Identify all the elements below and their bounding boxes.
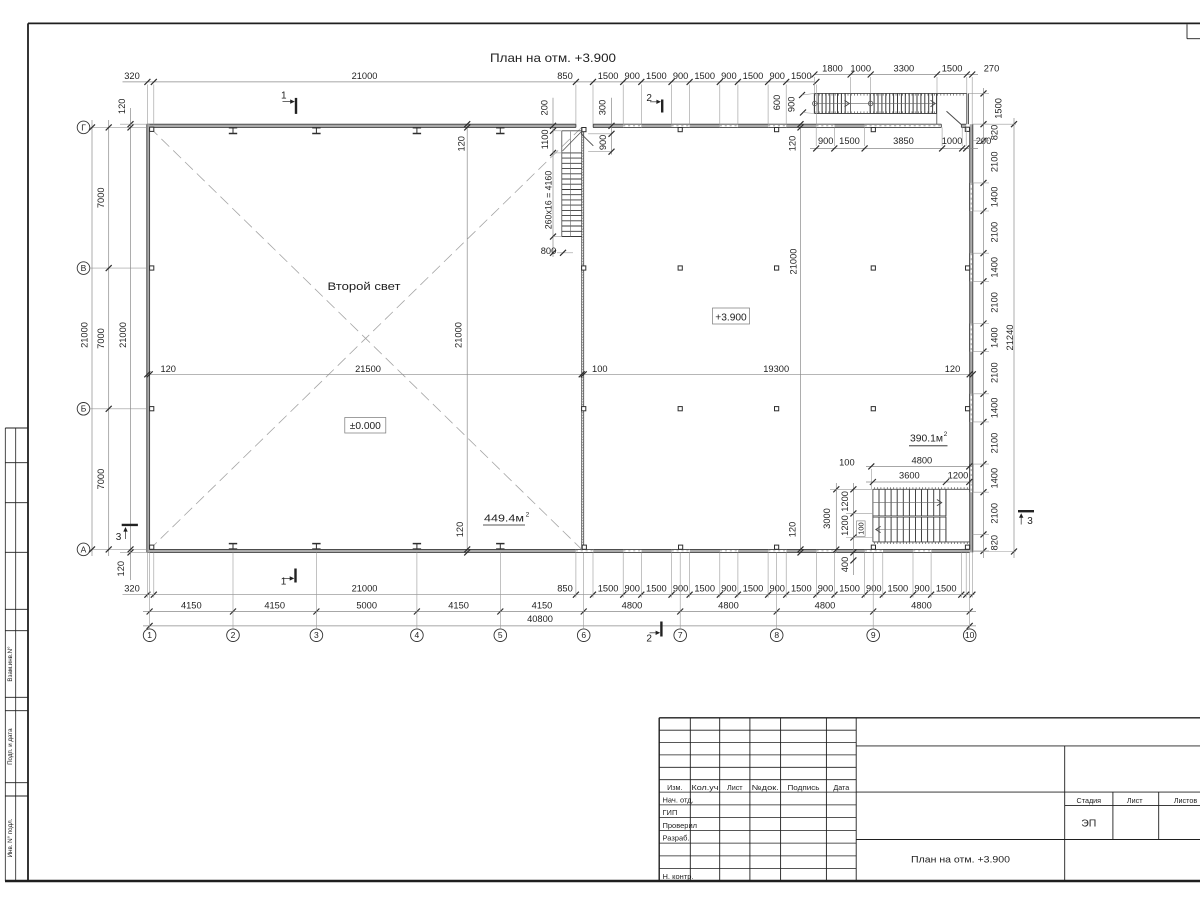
svg-text:7000: 7000 [96,469,106,490]
svg-text:900: 900 [818,136,834,146]
svg-text:2100: 2100 [989,433,999,454]
svg-text:1200: 1200 [840,515,850,536]
svg-text:900: 900 [787,97,797,113]
svg-text:3600: 3600 [899,471,920,481]
svg-text:100: 100 [839,457,855,467]
svg-text:40800: 40800 [527,614,553,624]
svg-text:1500: 1500 [791,71,812,81]
svg-text:7: 7 [678,630,683,640]
svg-text:2100: 2100 [989,292,999,313]
svg-text:1400: 1400 [989,187,999,208]
svg-text:Г: Г [81,122,86,132]
svg-text:А: А [81,544,87,554]
svg-text:1200: 1200 [840,491,850,512]
svg-text:Изм.: Изм. [667,783,682,792]
svg-text:5: 5 [498,630,503,640]
svg-text:850: 850 [557,71,573,81]
svg-text:Лист: Лист [1127,796,1143,805]
svg-text:Лист: Лист [727,783,743,792]
svg-text:820: 820 [990,125,1000,141]
svg-text:1200: 1200 [948,471,969,481]
svg-text:900: 900 [673,584,689,594]
svg-text:Н. контр.: Н. контр. [663,872,694,881]
svg-text:1500: 1500 [743,584,764,594]
svg-text:3: 3 [314,630,319,640]
svg-text:План на отм. +3.900: План на отм. +3.900 [490,51,616,65]
svg-text:8: 8 [774,630,779,640]
svg-text:3000: 3000 [822,508,832,529]
svg-text:100: 100 [856,522,865,534]
svg-text:Второй свет: Второй свет [328,281,401,293]
svg-text:1500: 1500 [598,71,619,81]
svg-text:Листов: Листов [1174,796,1198,805]
svg-text:120: 120 [116,561,126,577]
svg-text:1500: 1500 [791,584,812,594]
svg-text:1000: 1000 [850,64,871,74]
svg-text:1400: 1400 [989,257,999,278]
svg-text:260x16 = 4160: 260x16 = 4160 [544,171,554,230]
svg-text:№док.: №док. [752,783,779,792]
svg-text:ЭП: ЭП [1081,818,1096,830]
svg-text:Стадия: Стадия [1077,796,1102,805]
svg-text:900: 900 [818,584,834,594]
svg-text:120: 120 [787,136,797,152]
svg-text:Подп. и дата: Подп. и дата [7,728,14,765]
svg-text:21500: 21500 [355,364,381,374]
svg-text:900: 900 [598,135,608,151]
svg-text:+3.900: +3.900 [715,313,747,324]
svg-text:Б: Б [81,404,87,414]
svg-text:300: 300 [598,100,608,116]
svg-text:10: 10 [965,630,975,640]
svg-text:1500: 1500 [839,584,860,594]
svg-text:1500: 1500 [743,71,764,81]
svg-text:1500: 1500 [942,64,963,74]
svg-text:В: В [81,263,87,273]
svg-text:1500: 1500 [839,136,860,146]
svg-text:1400: 1400 [989,468,999,489]
svg-text:2100: 2100 [989,151,999,172]
svg-text:1500: 1500 [993,98,1003,119]
svg-text:1000: 1000 [942,136,963,146]
svg-text:±0.000: ±0.000 [350,421,381,432]
svg-text:1800: 1800 [822,64,843,74]
svg-text:4800: 4800 [718,600,739,610]
svg-text:21000: 21000 [80,322,90,348]
svg-text:900: 900 [914,584,930,594]
svg-text:2100: 2100 [989,222,999,243]
svg-text:Подпись: Подпись [788,783,820,792]
svg-text:Нач. отд.: Нач. отд. [663,795,694,804]
svg-text:1500: 1500 [888,584,909,594]
svg-text:4150: 4150 [181,600,202,610]
svg-text:1400: 1400 [989,398,999,419]
svg-text:100: 100 [592,364,608,374]
svg-text:21000: 21000 [352,71,378,81]
svg-text:120: 120 [455,522,465,538]
svg-text:270: 270 [984,64,1000,74]
svg-text:19300: 19300 [763,364,789,374]
svg-text:120: 120 [117,99,127,115]
svg-text:7000: 7000 [96,328,106,349]
svg-text:1500: 1500 [694,71,715,81]
svg-text:9: 9 [871,630,876,640]
svg-text:1100: 1100 [540,129,550,149]
svg-text:120: 120 [945,364,961,374]
svg-text:2100: 2100 [989,362,999,383]
svg-text:4150: 4150 [532,600,553,610]
svg-text:2: 2 [646,93,652,104]
svg-text:120: 120 [787,522,797,538]
svg-text:3300: 3300 [894,64,915,74]
svg-text:200: 200 [539,100,549,116]
svg-text:3: 3 [116,532,122,543]
svg-text:2: 2 [526,512,530,519]
svg-text:320: 320 [124,584,140,594]
svg-text:1400: 1400 [989,327,999,348]
svg-text:900: 900 [624,71,640,81]
svg-text:900: 900 [721,584,737,594]
svg-text:900: 900 [866,584,882,594]
svg-text:390.1м: 390.1м [910,434,943,445]
svg-text:1: 1 [281,91,287,102]
svg-text:Взам.инв.N°: Взам.инв.N° [7,646,14,682]
svg-text:4800: 4800 [912,455,933,465]
svg-text:800: 800 [541,246,557,256]
svg-text:4800: 4800 [815,600,836,610]
svg-text:Дата: Дата [833,783,849,792]
svg-text:Кол.уч: Кол.уч [692,783,719,792]
svg-text:1: 1 [147,630,152,640]
svg-text:7000: 7000 [96,187,106,208]
svg-text:21000: 21000 [789,249,799,275]
svg-text:1: 1 [281,577,287,588]
svg-text:21000: 21000 [352,584,378,594]
svg-text:120: 120 [456,136,466,152]
svg-text:4150: 4150 [264,600,285,610]
svg-text:900: 900 [769,584,785,594]
svg-text:Проверил: Проверил [663,821,698,830]
svg-text:4150: 4150 [448,600,469,610]
svg-text:1500: 1500 [598,584,619,594]
svg-text:120: 120 [160,364,176,374]
svg-text:3: 3 [1027,516,1033,527]
svg-text:План на отм. +3.900: План на отм. +3.900 [911,855,1010,865]
svg-text:1500: 1500 [646,71,667,81]
svg-text:4800: 4800 [911,600,932,610]
svg-text:820: 820 [989,535,999,551]
svg-text:2100: 2100 [989,503,999,524]
svg-text:449.4м: 449.4м [484,514,524,525]
svg-text:900: 900 [624,584,640,594]
svg-text:6: 6 [581,630,586,640]
svg-text:3850: 3850 [893,136,914,146]
svg-text:5000: 5000 [356,600,377,610]
svg-text:ГИП: ГИП [663,808,678,817]
svg-text:4800: 4800 [622,600,643,610]
svg-text:2: 2 [231,630,236,640]
svg-text:320: 320 [124,71,140,81]
svg-text:4: 4 [415,630,420,640]
svg-text:900: 900 [721,71,737,81]
svg-text:600: 600 [772,95,782,111]
svg-text:21000: 21000 [454,322,464,348]
svg-text:1500: 1500 [936,584,957,594]
svg-text:900: 900 [673,71,689,81]
svg-text:1500: 1500 [646,584,667,594]
svg-text:21240: 21240 [1005,325,1015,351]
svg-text:Инв. N° подл.: Инв. N° подл. [7,818,14,857]
svg-text:Разраб.: Разраб. [663,834,690,843]
svg-text:900: 900 [769,71,785,81]
svg-text:1500: 1500 [694,584,715,594]
svg-text:2: 2 [944,431,948,438]
svg-text:21000: 21000 [118,322,128,348]
svg-text:850: 850 [557,584,573,594]
svg-text:2: 2 [646,634,652,645]
svg-text:400: 400 [840,557,850,573]
